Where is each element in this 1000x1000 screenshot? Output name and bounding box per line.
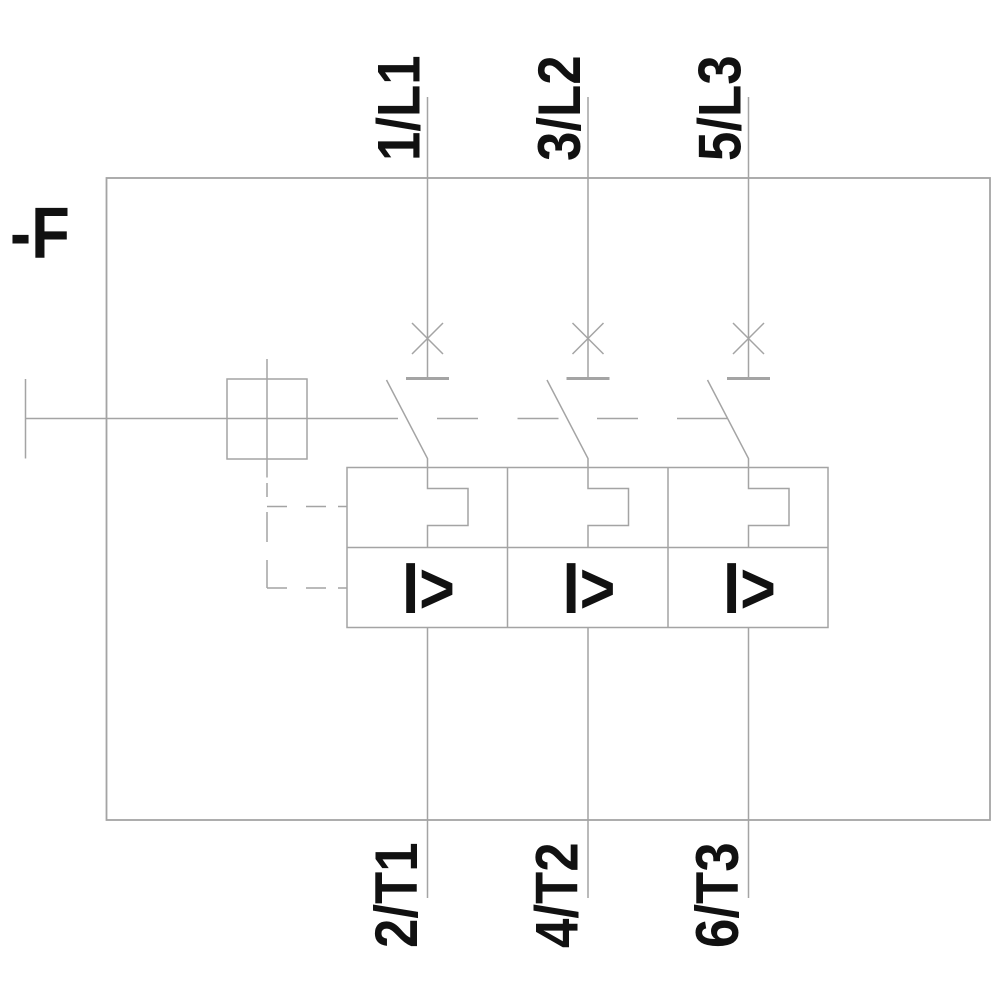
trip-linkage-dashed-lines xyxy=(267,419,727,589)
magnetic-trip-label: I> xyxy=(723,549,776,629)
terminal-label-bottom: 6/T3 xyxy=(684,842,751,948)
pole-2: 3/L2 4/T2 I> xyxy=(523,55,628,948)
thermal-overload-symbol xyxy=(749,468,790,549)
thermal-overload-symbol xyxy=(588,468,629,549)
terminal-label-bottom: 4/T2 xyxy=(523,842,590,948)
terminal-label-top: 5/L3 xyxy=(686,55,753,161)
schematic-canvas: 1/L1 2/T1 I> 3/L2 4/T2 I> 5/L3 6/T3 xyxy=(0,0,1000,1000)
contact-lever xyxy=(708,380,749,468)
operating-mechanism xyxy=(26,359,728,588)
terminal-label-top: 3/L2 xyxy=(526,55,593,161)
pole-1: 1/L1 2/T1 I> xyxy=(363,55,468,948)
terminal-label-top: 1/L1 xyxy=(365,55,432,161)
motor-protector-schematic: 1/L1 2/T1 I> 3/L2 4/T2 I> 5/L3 6/T3 xyxy=(0,0,1000,1000)
terminal-label-bottom: 2/T1 xyxy=(363,842,430,948)
contact-lever xyxy=(387,380,428,468)
enclosure-border xyxy=(107,178,991,820)
magnetic-trip-label: I> xyxy=(563,549,616,629)
thermal-overload-symbol xyxy=(428,468,469,549)
device-tag: -F xyxy=(10,194,70,274)
pole-3: 5/L3 6/T3 I> xyxy=(684,55,789,948)
contact-lever xyxy=(547,380,588,468)
magnetic-trip-label: I> xyxy=(402,549,455,629)
